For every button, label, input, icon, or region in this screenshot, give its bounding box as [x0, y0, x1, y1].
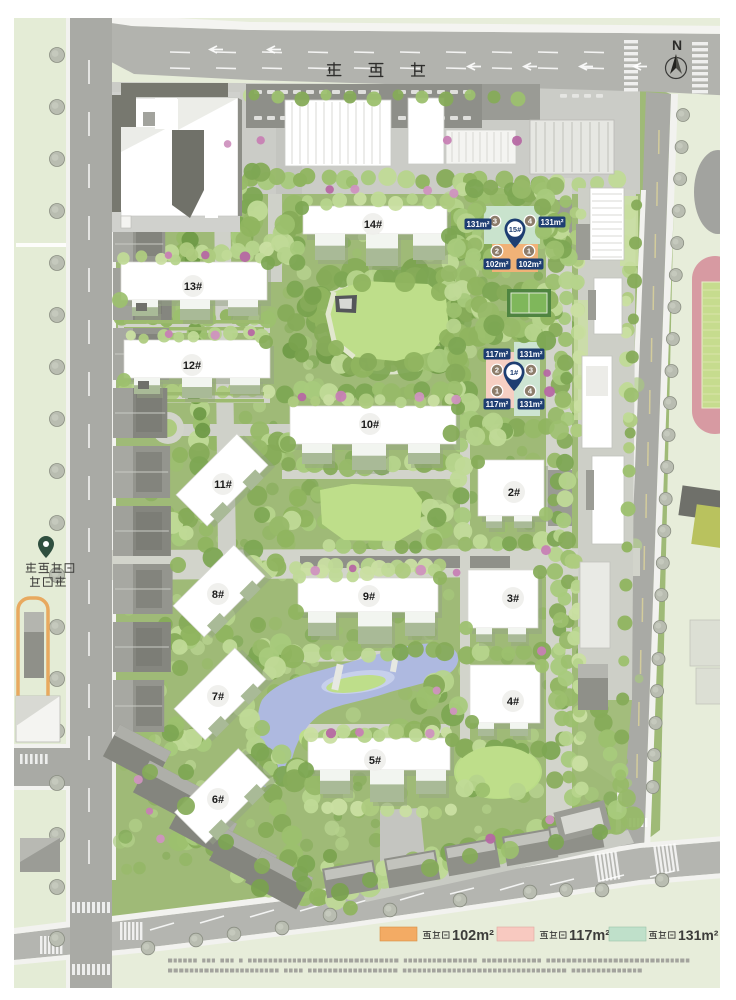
svg-text:131m²: 131m² [466, 220, 489, 229]
svg-text:5#: 5# [369, 755, 381, 767]
svg-text:3: 3 [493, 217, 497, 226]
svg-text:2#: 2# [508, 487, 520, 499]
svg-text:N: N [672, 37, 682, 53]
svg-text:3#: 3# [507, 593, 519, 605]
svg-text:2: 2 [495, 247, 499, 256]
svg-text:2: 2 [495, 366, 499, 375]
svg-text:1: 1 [495, 387, 499, 396]
svg-text:117m²: 117m² [569, 928, 610, 944]
svg-text:117m²: 117m² [486, 350, 509, 359]
svg-text:3: 3 [529, 366, 533, 375]
svg-text:131m²: 131m² [519, 400, 542, 409]
svg-text:117m²: 117m² [486, 400, 509, 409]
svg-text:131m²: 131m² [519, 350, 542, 359]
svg-text:1#: 1# [510, 368, 519, 377]
svg-text:10#: 10# [361, 419, 379, 431]
svg-text:131m²: 131m² [678, 927, 719, 943]
svg-text:102m²: 102m² [452, 928, 494, 944]
svg-text:12#: 12# [183, 360, 201, 372]
svg-text:6#: 6# [212, 794, 224, 806]
svg-text:15#: 15# [509, 225, 522, 234]
svg-text:102m²: 102m² [518, 260, 541, 269]
svg-text:8#: 8# [212, 589, 224, 601]
svg-text:1: 1 [527, 247, 531, 256]
svg-text:14#: 14# [364, 219, 382, 231]
svg-text:11#: 11# [214, 479, 232, 491]
svg-text:7#: 7# [212, 691, 224, 703]
svg-text:4#: 4# [507, 696, 519, 708]
svg-text:131m²: 131m² [540, 218, 563, 227]
svg-text:102m²: 102m² [485, 260, 508, 269]
svg-text:13#: 13# [184, 281, 202, 293]
svg-text:9#: 9# [363, 591, 375, 603]
